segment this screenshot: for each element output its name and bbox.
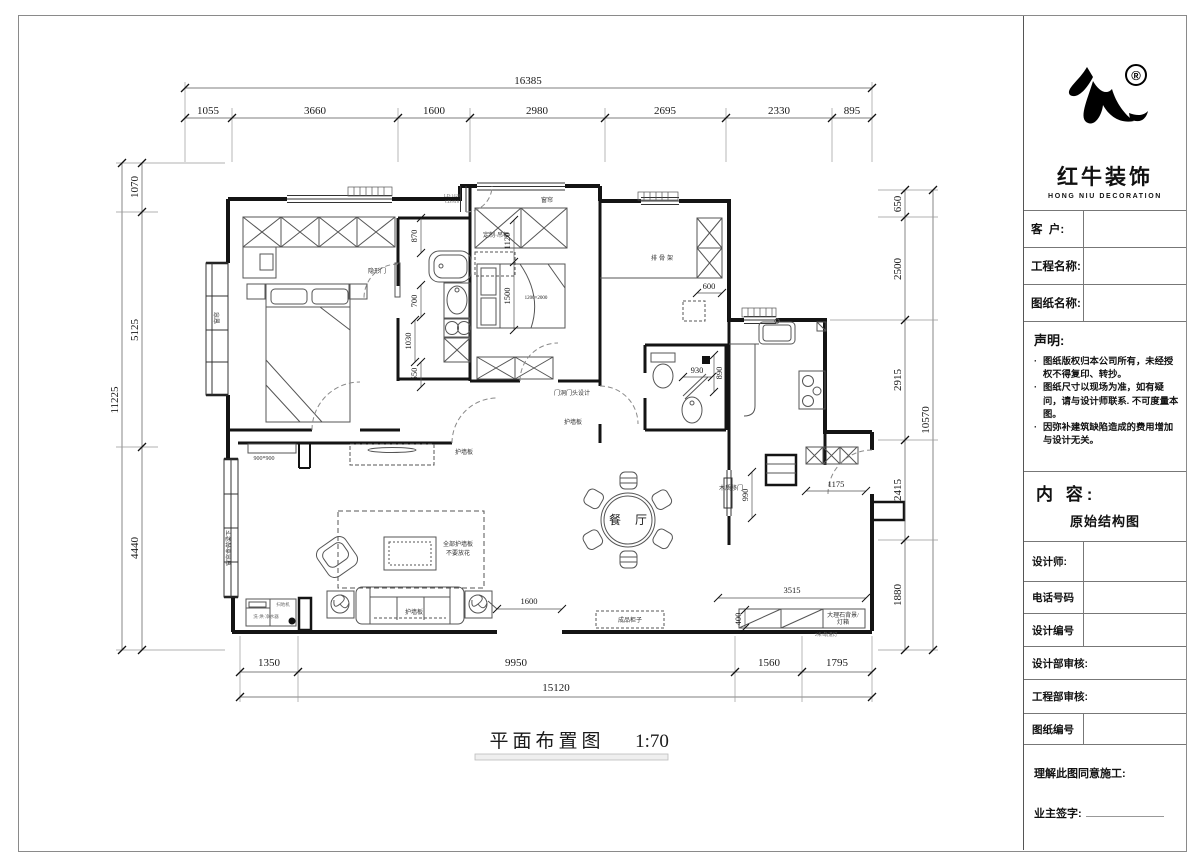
designer-row: 设计师: — [1024, 542, 1186, 582]
dining-room-label: 餐厅 — [609, 512, 661, 527]
engineering-audit-label: 工程部审核: — [1024, 680, 1088, 713]
panel-sofa-label: 护墙板 — [405, 608, 423, 616]
slat-rack-label: 排骨架 — [651, 254, 675, 262]
dim-890: 890 — [714, 367, 724, 380]
sheet-no-label: 图纸编号 — [1024, 714, 1084, 744]
marble-label-2: 灯箱 — [837, 618, 849, 626]
design-no-row: 设计编号 — [1024, 614, 1186, 647]
dim-right-5: 1880 — [892, 584, 904, 607]
dim-top-total: 16385 — [514, 75, 542, 87]
dim-top-6: 2330 — [768, 105, 791, 117]
dim-3515: 3515 — [784, 585, 801, 595]
dim-1600: 1600 — [521, 596, 538, 606]
phone-row: 电话号码 — [1024, 582, 1186, 614]
project-name-value[interactable] — [1084, 248, 1186, 284]
size900-label: 900*900 — [254, 456, 275, 462]
engineering-audit-row: 工程部审核: — [1024, 680, 1186, 714]
dim-right-2: 2500 — [892, 258, 904, 281]
design-audit-label: 设计部审核: — [1024, 647, 1088, 679]
track-light-label: 2米3轨道灯 — [815, 631, 838, 638]
designer-label: 设计师: — [1024, 542, 1084, 581]
project-name-label: 工程名称: — [1024, 248, 1084, 284]
marble-label-1: 大理石背景/ — [827, 611, 859, 619]
dim-right-3: 2915 — [892, 369, 904, 392]
dim-top-7: 895 — [844, 105, 861, 117]
dim-right-1: 650 — [892, 195, 904, 212]
drawing-name-value[interactable] — [1084, 285, 1186, 321]
drawing-name-row: 图纸名称: — [1024, 285, 1186, 322]
statement-text-3: 因弥补建筑缺陷造成的费用增加与设计无关。 — [1043, 421, 1180, 447]
phone-label: 电话号码 — [1024, 582, 1084, 613]
panel-tv-label: 护墙板 — [455, 448, 473, 456]
caption-title: 平面布置图 — [489, 730, 604, 752]
statement-title: 声明: — [1034, 330, 1180, 349]
owner-signature-label: 业主签字: — [1034, 805, 1178, 821]
hidden-door-label: 隐形门 — [368, 267, 386, 275]
dim-top-1: 1055 — [197, 105, 220, 117]
curtain-window-label: 窗帘 — [541, 196, 553, 204]
bull-logo-icon: ® — [1057, 61, 1153, 161]
brand-name-cn: 红牛装饰 — [1057, 161, 1153, 191]
customer-value[interactable] — [1084, 211, 1186, 247]
dimension-ticks — [118, 84, 937, 701]
dim-left-3: 4440 — [129, 537, 141, 560]
dim-1030: 1030 — [403, 333, 413, 350]
furniture — [243, 208, 865, 628]
door-head-label: 门洞门头设计 — [554, 389, 590, 397]
statement-text-1: 图纸版权归本公司所有，未经授权不得复印、转抄。 — [1043, 355, 1180, 381]
annotations: 隐形门 窗帘 窗帘 LD:1420 CD:810 定制·吊柜 1200×2000… — [213, 193, 859, 638]
registered-mark: ® — [1131, 68, 1141, 83]
title-block: ® 红牛装饰 HONG NIU DECORATION 客 户: 工程名称: 图纸… — [1023, 15, 1186, 850]
cd-code-label: CD:810 — [445, 199, 460, 204]
windows — [206, 183, 776, 597]
design-audit-row: 设计部审核: — [1024, 647, 1186, 680]
customer-label: 客 户: — [1024, 211, 1084, 247]
statement-item: ·因弥补建筑缺陷造成的费用增加与设计无关。 — [1034, 421, 1180, 447]
dim-bottom-3: 1560 — [758, 657, 781, 669]
dim-left-2: 5125 — [129, 319, 141, 342]
content-section: 内 容: 原始结构图 — [1024, 472, 1186, 542]
finished-cabinet-label: 成品柜子 — [618, 616, 642, 624]
dim-550: 550 — [409, 368, 419, 381]
dim-930: 930 — [691, 365, 704, 375]
bullet-icon: · — [1034, 421, 1043, 447]
owner-signature-text: 业主签字: — [1034, 808, 1082, 820]
dim-top-2: 3660 — [304, 105, 327, 117]
content-value: 原始结构图 — [1024, 511, 1186, 530]
interior-walls — [228, 186, 825, 630]
drawing-name-label: 图纸名称: — [1024, 285, 1084, 321]
floor-plan: 16385 1055 3660 1600 2980 2695 2330 895 … — [0, 0, 1030, 864]
dim-870: 870 — [409, 230, 419, 243]
dim-left-1: 1070 — [129, 176, 141, 199]
project-name-row: 工程名称: — [1024, 248, 1186, 285]
dim-top-5: 2695 — [654, 105, 677, 117]
statement-item: ·图纸版权归本公司所有，未经授权不得复印、转抄。 — [1034, 355, 1180, 381]
sheet-no-row: 图纸编号 — [1024, 714, 1186, 745]
dim-bottom-total: 15120 — [542, 682, 570, 694]
caption: 平面布置图 1:70 — [475, 730, 669, 760]
dim-left-total: 11225 — [109, 386, 121, 414]
bullet-icon: · — [1034, 355, 1043, 381]
statement-item: ·图纸尺寸以现场为准，如有疑问，请与设计师联系. 不可度量本图。 — [1034, 381, 1180, 421]
statement-text-2: 图纸尺寸以现场为准，如有疑问，请与设计师联系. 不可度量本图。 — [1043, 381, 1180, 421]
design-no-label: 设计编号 — [1024, 614, 1084, 646]
panel-note1-label: 全部护墙板 — [443, 540, 473, 548]
entry-cabinet-label-2: 洗·烘·净水器 — [253, 613, 279, 620]
content-label: 内 容: — [1024, 480, 1186, 505]
signature-line[interactable] — [1086, 806, 1164, 817]
dim-top-3: 1600 — [423, 105, 446, 117]
solid-marks — [289, 356, 711, 625]
dim-right-4: 2415 — [892, 479, 904, 502]
wood-slide-door-label: 木质移门 — [719, 484, 743, 492]
dim-1175: 1175 — [828, 479, 845, 489]
curtain-bay-label: 窗帘 — [213, 312, 221, 324]
agree-construction-label: 理解此图同意施工: — [1034, 765, 1178, 781]
dim-right-total: 10570 — [920, 406, 932, 434]
statement-section: 声明: ·图纸版权归本公司所有，未经授权不得复印、转抄。 ·图纸尺寸以现场为准，… — [1024, 322, 1186, 472]
ld-code-label: LD:1420 — [444, 193, 461, 198]
dim-bottom-2: 9950 — [505, 657, 528, 669]
caption-scale: 1:70 — [635, 731, 669, 752]
bullet-icon: · — [1034, 381, 1043, 421]
entry-cabinet-label-1: 扫地机 — [276, 601, 290, 608]
panel-hall-label: 护墙板 — [564, 418, 582, 426]
brand-logo-section: ® 红牛装饰 HONG NIU DECORATION — [1024, 15, 1186, 211]
panel-note2-label: 不要放花 — [446, 549, 470, 557]
curtain-box-label: 窗帘盒做梁下 — [225, 530, 233, 566]
dim-400: 400 — [733, 613, 743, 626]
caption-underline — [475, 754, 668, 760]
signature-section: 理解此图同意施工: 业主签字: — [1024, 745, 1186, 850]
customer-row: 客 户: — [1024, 211, 1186, 248]
dim-1500: 1500 — [502, 288, 512, 305]
dim-600: 600 — [703, 281, 716, 291]
dim-700: 700 — [409, 295, 419, 308]
dim-bottom-1: 1350 — [258, 657, 281, 669]
brand-name-en: HONG NIU DECORATION — [1048, 193, 1162, 200]
custom-cabinet-label: 定制·吊柜 — [483, 231, 509, 239]
dim-bottom-4: 1795 — [826, 657, 849, 669]
dim-top-4: 2980 — [526, 105, 549, 117]
bed-size-label: 1200×2000 — [525, 296, 548, 301]
